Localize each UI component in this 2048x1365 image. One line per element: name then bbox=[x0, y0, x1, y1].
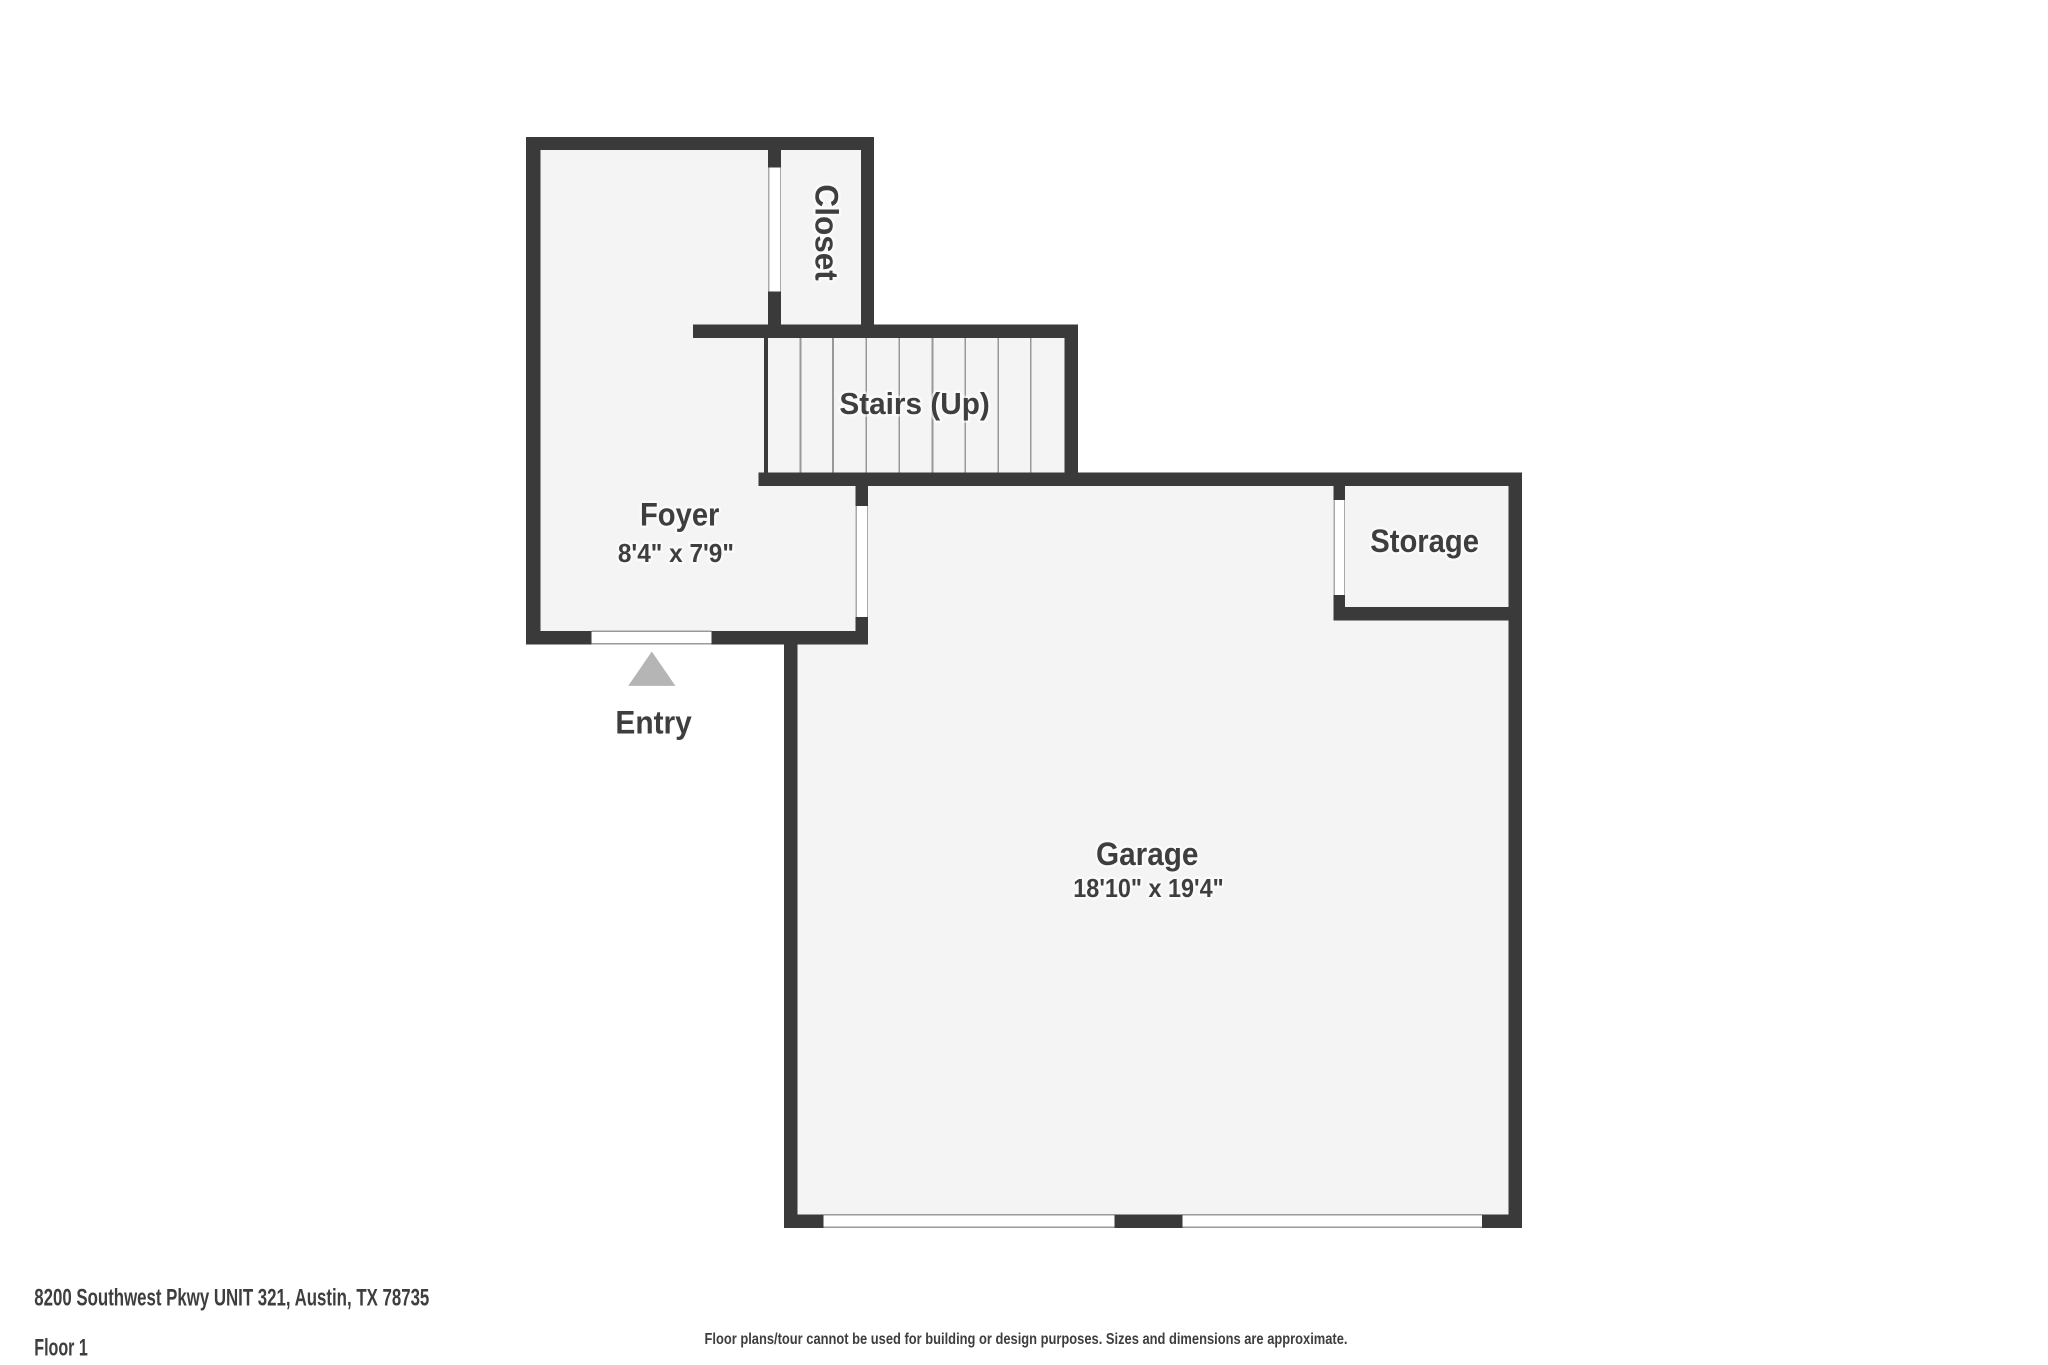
svg-text:8200 Southwest Pkwy UNIT 321,: 8200 Southwest Pkwy UNIT 321, Austin, TX… bbox=[34, 1285, 429, 1312]
svg-text:Garage: Garage bbox=[1096, 836, 1199, 872]
svg-text:Entry: Entry bbox=[615, 705, 692, 741]
svg-text:Foyer: Foyer bbox=[640, 497, 719, 533]
svg-text:Floor plans/tour cannot be use: Floor plans/tour cannot be used for buil… bbox=[705, 1331, 1348, 1348]
svg-text:Closet: Closet bbox=[809, 184, 845, 281]
svg-text:Stairs (Up): Stairs (Up) bbox=[839, 386, 990, 421]
svg-text:18'10" x 19'4": 18'10" x 19'4" bbox=[1073, 873, 1223, 903]
svg-text:Floor 1: Floor 1 bbox=[34, 1335, 88, 1362]
svg-text:Storage: Storage bbox=[1370, 523, 1479, 559]
svg-text:8'4" x 7'9": 8'4" x 7'9" bbox=[618, 538, 734, 568]
